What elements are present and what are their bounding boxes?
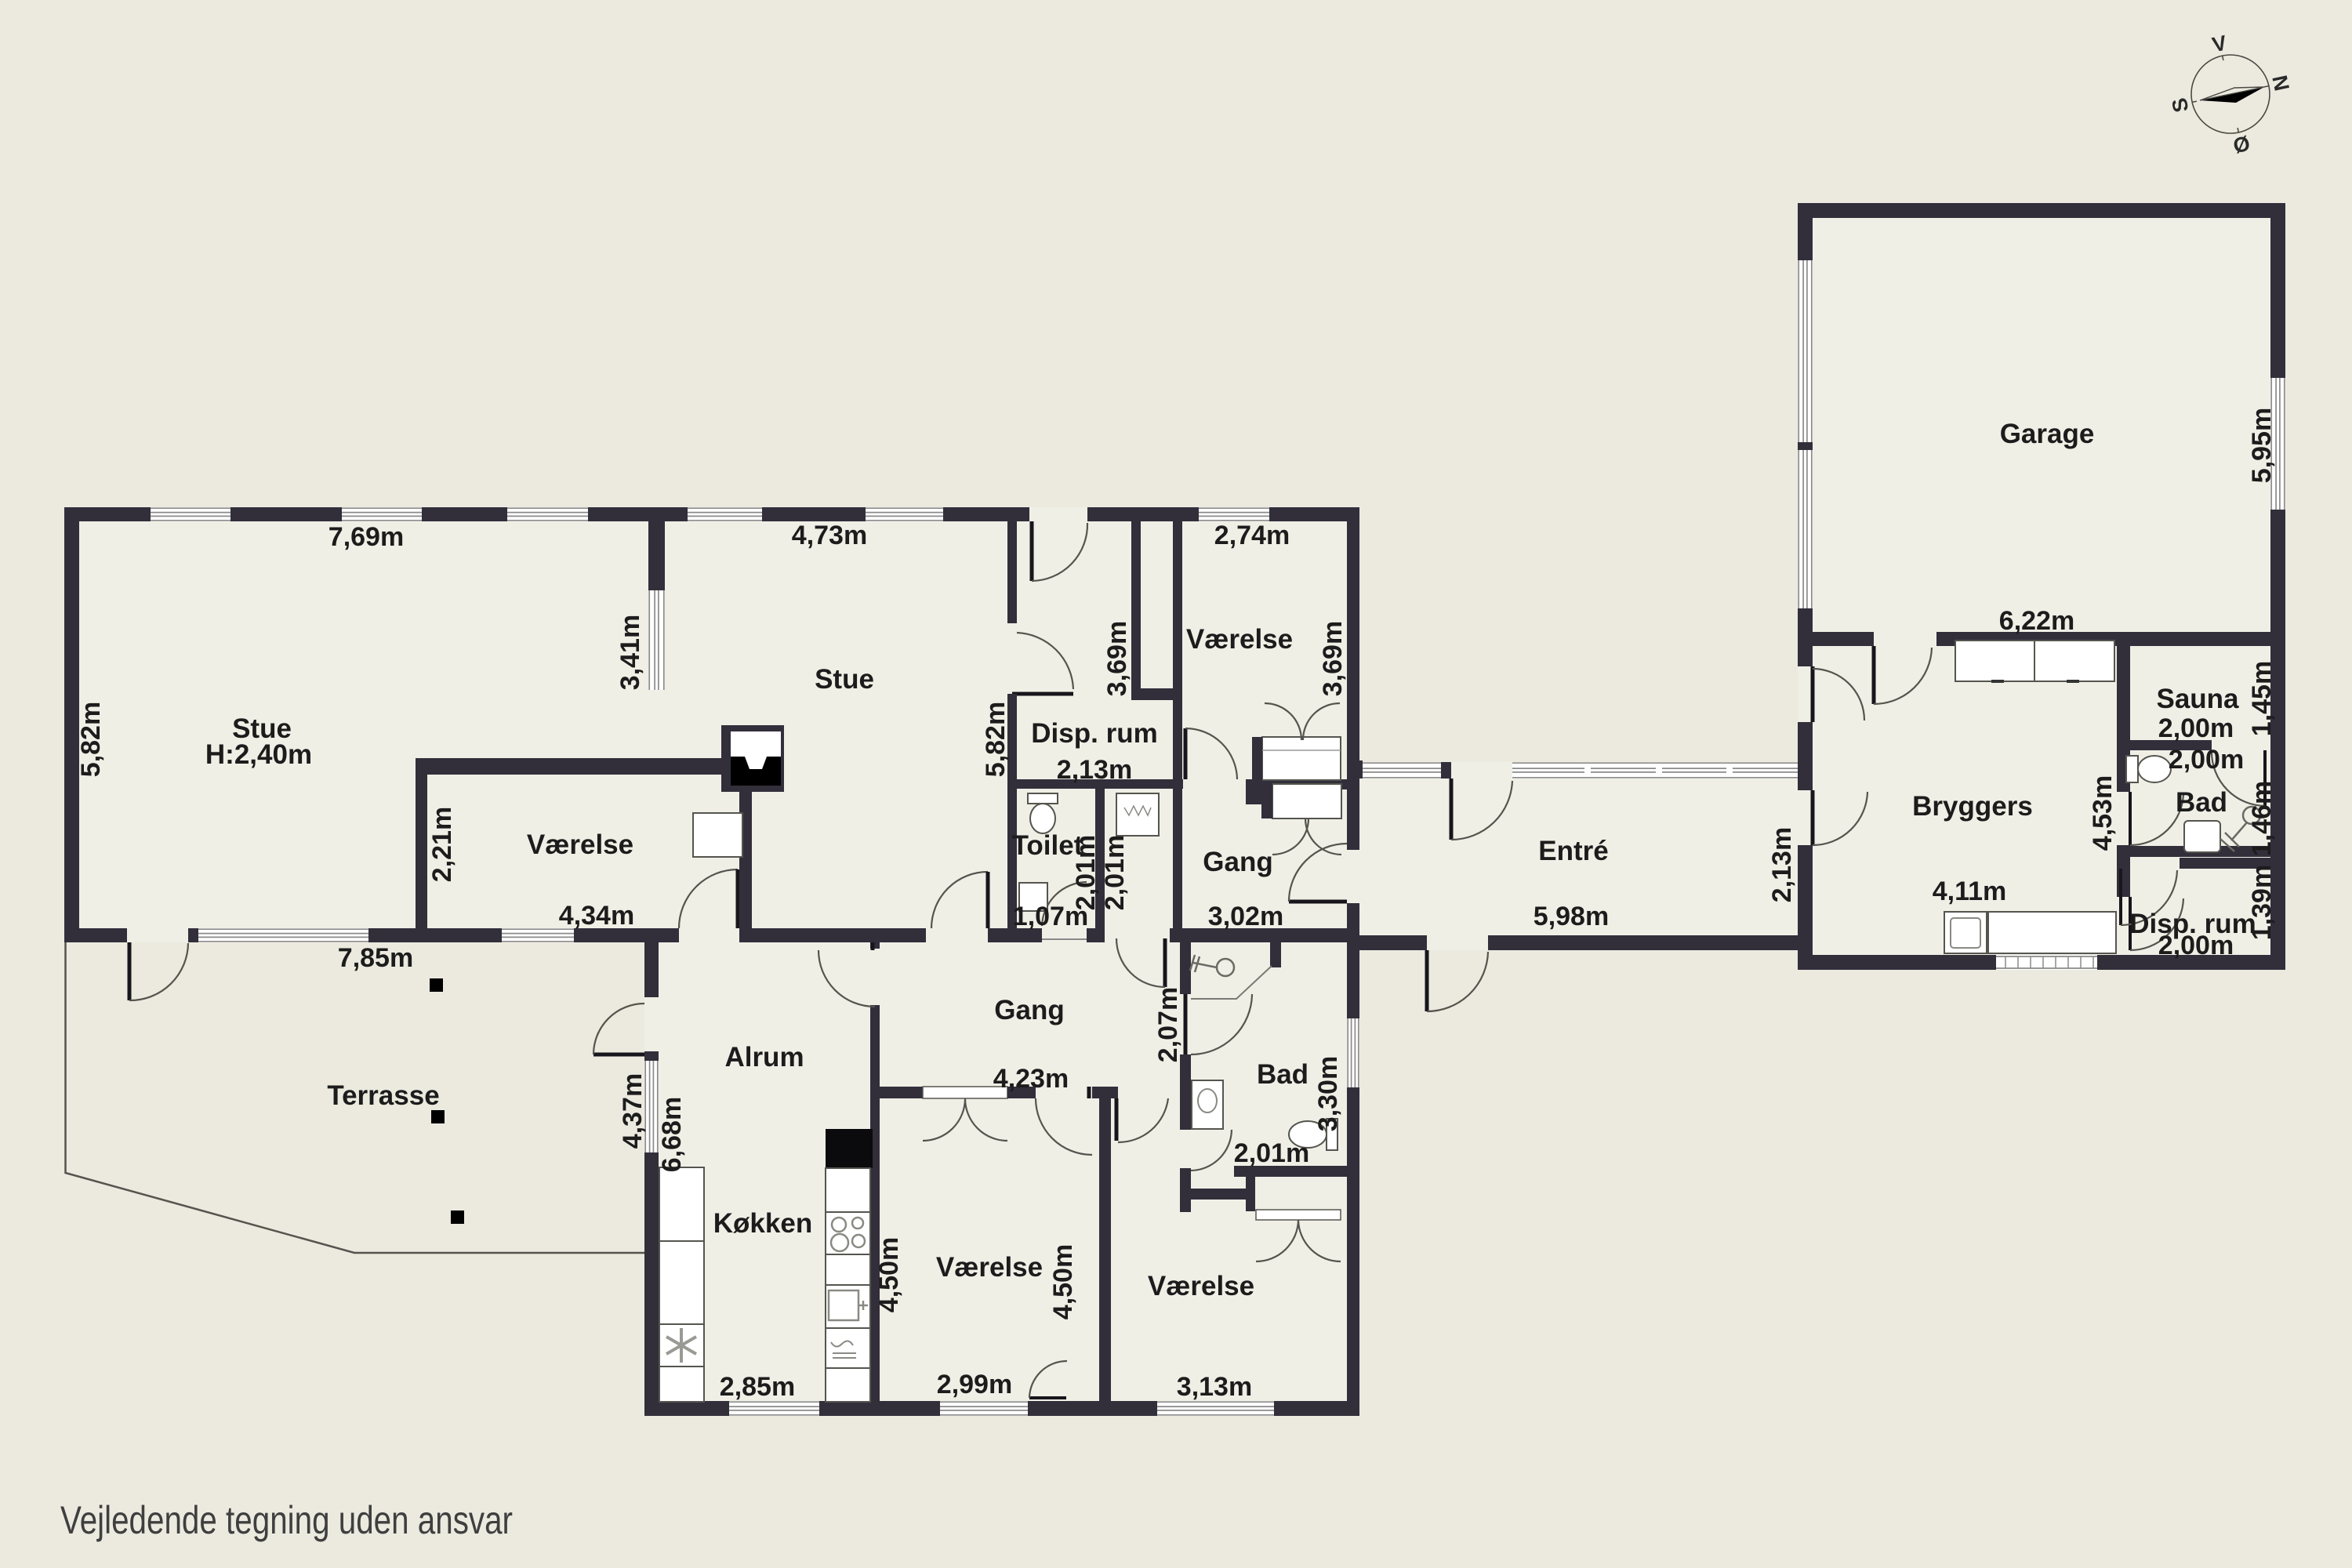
svg-text:4,50m: 4,50m [1048, 1244, 1078, 1319]
svg-text:7,69m: 7,69m [328, 522, 404, 552]
svg-text:4,50m: 4,50m [874, 1237, 904, 1312]
svg-text:3,02m: 3,02m [1208, 902, 1283, 931]
svg-text:Værelse: Værelse [936, 1252, 1043, 1283]
svg-text:Værelse: Værelse [1148, 1271, 1254, 1301]
svg-text:3,30m: 3,30m [1313, 1056, 1343, 1131]
svg-text:4,23m: 4,23m [993, 1064, 1069, 1094]
svg-text:Bad: Bad [1257, 1059, 1308, 1090]
svg-text:5,98m: 5,98m [1534, 902, 1609, 931]
svg-text:2,01m: 2,01m [1100, 835, 1130, 910]
svg-text:4,34m: 4,34m [559, 901, 634, 931]
svg-text:Køkken: Køkken [713, 1208, 812, 1239]
svg-text:Entré: Entré [1538, 836, 1608, 866]
svg-text:2,74m: 2,74m [1214, 521, 1290, 550]
svg-text:4,73m: 4,73m [792, 521, 867, 550]
svg-text:2,85m: 2,85m [720, 1372, 795, 1402]
svg-text:5,95m: 5,95m [2247, 408, 2277, 483]
svg-text:5,82m: 5,82m [76, 702, 106, 777]
svg-text:3,69m: 3,69m [1102, 621, 1132, 696]
svg-text:Sauna: Sauna [2156, 684, 2239, 714]
svg-text:Bryggers: Bryggers [1912, 791, 2033, 822]
svg-text:5,82m: 5,82m [981, 702, 1011, 777]
svg-text:Gang: Gang [1203, 847, 1272, 877]
svg-text:2,01m: 2,01m [1234, 1138, 1309, 1168]
svg-text:Gang: Gang [994, 995, 1064, 1025]
svg-text:Alrum: Alrum [724, 1042, 804, 1073]
svg-text:2,01m: 2,01m [1071, 835, 1101, 910]
svg-text:2,00m: 2,00m [2158, 931, 2234, 960]
svg-text:2,07m: 2,07m [1153, 987, 1183, 1062]
svg-text:1,45m: 1,45m [2247, 661, 2277, 736]
svg-text:3,41m: 3,41m [615, 615, 645, 690]
svg-text:Stue: Stue [815, 664, 874, 695]
svg-text:6,22m: 6,22m [1999, 606, 2074, 636]
svg-text:4,37m: 4,37m [618, 1073, 648, 1149]
svg-text:Værelse: Værelse [1186, 624, 1293, 655]
svg-text:Værelse: Værelse [527, 829, 633, 860]
svg-text:Disp. rum: Disp. rum [1031, 718, 1157, 749]
svg-text:Garage: Garage [2000, 419, 2095, 449]
svg-text:1,46m: 1,46m [2247, 781, 2277, 856]
svg-text:3,13m: 3,13m [1177, 1372, 1252, 1402]
svg-text:4,11m: 4,11m [1933, 877, 2007, 906]
svg-text:H:2,40m: H:2,40m [205, 739, 312, 770]
svg-text:2,13m: 2,13m [1767, 827, 1797, 902]
svg-text:2,21m: 2,21m [427, 807, 457, 882]
svg-text:Bad: Bad [2176, 787, 2227, 818]
svg-text:2,13m: 2,13m [1057, 755, 1132, 785]
svg-text:6,68m: 6,68m [657, 1097, 687, 1172]
svg-text:7,85m: 7,85m [338, 943, 413, 973]
svg-text:2,00m: 2,00m [2169, 745, 2244, 775]
svg-text:3,69m: 3,69m [1318, 621, 1348, 696]
svg-text:4,53m: 4,53m [2088, 775, 2118, 851]
svg-text:2,99m: 2,99m [937, 1370, 1012, 1399]
svg-text:Terrasse: Terrasse [327, 1080, 439, 1111]
svg-text:2,00m: 2,00m [2158, 713, 2234, 743]
svg-text:Vejledende tegning uden ansvar: Vejledende tegning uden ansvar [60, 1498, 513, 1542]
svg-text:1,39m: 1,39m [2247, 865, 2277, 940]
